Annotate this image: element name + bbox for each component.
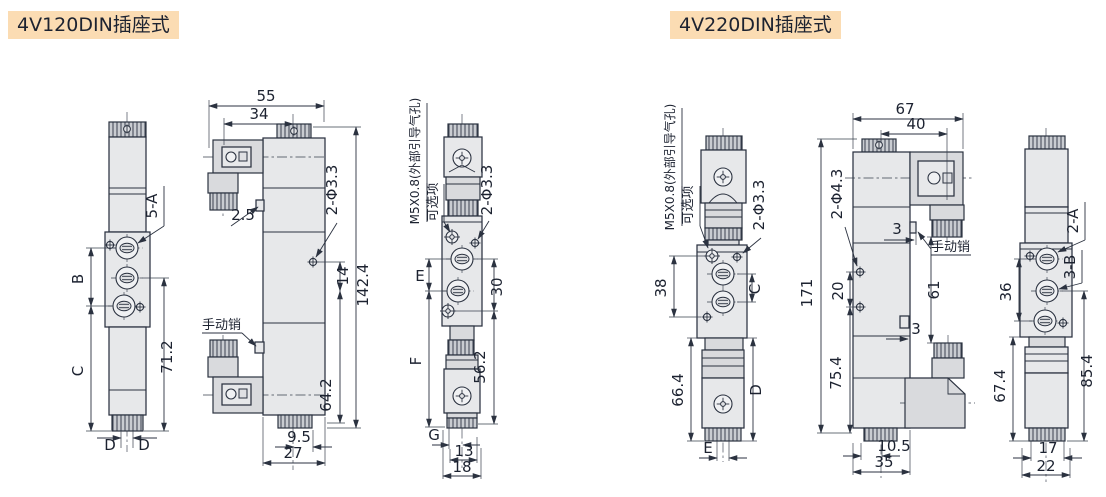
dim-71-2: 71.2 (158, 340, 176, 373)
callout-port-5a: 5-A (143, 193, 161, 219)
dim-35: 35 (874, 453, 893, 471)
v220-end-view: 2-A 3-B 36 67.4 (991, 128, 1096, 482)
dim-66-4: 66.4 (669, 373, 687, 406)
dim-3-top: 3 (892, 220, 902, 238)
dim-2-5: 2.5 (231, 206, 255, 224)
dim-17: 17 (1038, 439, 1057, 457)
v220-side-view: M5X0.8(外部引导气孔) 可选项 2-Φ3.3 38 C (652, 104, 768, 462)
dim-34: 34 (249, 105, 268, 123)
v120-side-view: 5-A B C 71.2 (69, 112, 176, 454)
dim-22: 22 (1036, 457, 1055, 475)
label-manual-pin: 手动销 (931, 240, 970, 255)
dim-142-4: 142.4 (354, 264, 372, 307)
dim-g: G (428, 426, 440, 444)
dim-20: 20 (829, 281, 847, 300)
callout-2-phi3-3: 2-Φ3.3 (478, 165, 496, 216)
figure-4v120: 5-A B C 71.2 (69, 87, 506, 479)
dim-75-4: 75.4 (827, 356, 845, 389)
technical-drawing-canvas: 4V120DIN插座式 4V220DIN插座式 (0, 0, 1106, 497)
dim-61: 61 (925, 280, 943, 299)
callout-2-phi3-3: 2-Φ3.3 (323, 165, 341, 216)
label-optional: 可选项 (681, 185, 696, 224)
manual-pin-tab (910, 222, 916, 233)
callout-port-3b: 3-B (1061, 255, 1079, 280)
dim-b: B (69, 274, 87, 284)
label-optional: 可选项 (426, 182, 441, 221)
pilot-tab (256, 200, 264, 211)
dim-55: 55 (256, 87, 275, 105)
dim-e: E (703, 439, 712, 457)
dim-e: E (415, 267, 424, 285)
figure-4v220: M5X0.8(外部引导气孔) 可选项 2-Φ3.3 38 C (652, 100, 1096, 482)
dim-3-bottom: 3 (911, 320, 921, 338)
dim-56-2: 56.2 (471, 350, 489, 383)
label-pilot-port: M5X0.8(外部引导气孔) (407, 98, 422, 225)
dim-f: F (407, 357, 425, 366)
callout-port-2a: 2-A (1064, 208, 1082, 234)
v120-front-view: 55 34 2.5 2-Φ3.3 14 64.2 (202, 87, 372, 470)
valve-drawing: 5-A B C 71.2 (0, 0, 1106, 497)
solenoid-screw-icon (453, 149, 471, 167)
dim-85-4: 85.4 (1078, 354, 1096, 387)
dim-64-2: 64.2 (317, 378, 335, 411)
v220-front-view: 67 40 2-Φ4.3 3 手动销 171 (798, 100, 975, 478)
dim-d-left: D (104, 436, 116, 454)
label-pilot-port: M5X0.8(外部引导气孔) (662, 104, 677, 231)
dim-14: 14 (334, 266, 352, 285)
manual-pin-tab (255, 342, 264, 353)
dim-171: 171 (798, 279, 816, 308)
dim-36: 36 (997, 282, 1015, 301)
dim-30: 30 (488, 277, 506, 296)
dim-c: C (69, 366, 87, 376)
solenoid-screw-icon (714, 168, 732, 186)
dim-c: C (746, 284, 764, 294)
dim-d: D (747, 384, 765, 396)
solenoid-screw-icon (714, 395, 732, 413)
dim-d-right: D (138, 436, 150, 454)
dim-38: 38 (652, 278, 670, 297)
label-manual-pin: 手动销 (202, 318, 241, 333)
dim-27: 27 (283, 444, 302, 462)
callout-2-phi4-3: 2-Φ4.3 (828, 169, 846, 220)
callout-2-phi3-3: 2-Φ3.3 (750, 180, 768, 231)
solenoid-screw-icon (453, 387, 471, 405)
dim-67-4: 67.4 (991, 369, 1009, 402)
v120-end-view: M5X0.8(外部引导气孔) 可选项 2-Φ3.3 E F (407, 98, 506, 479)
dim-40: 40 (906, 115, 925, 133)
dim-18: 18 (452, 458, 471, 476)
